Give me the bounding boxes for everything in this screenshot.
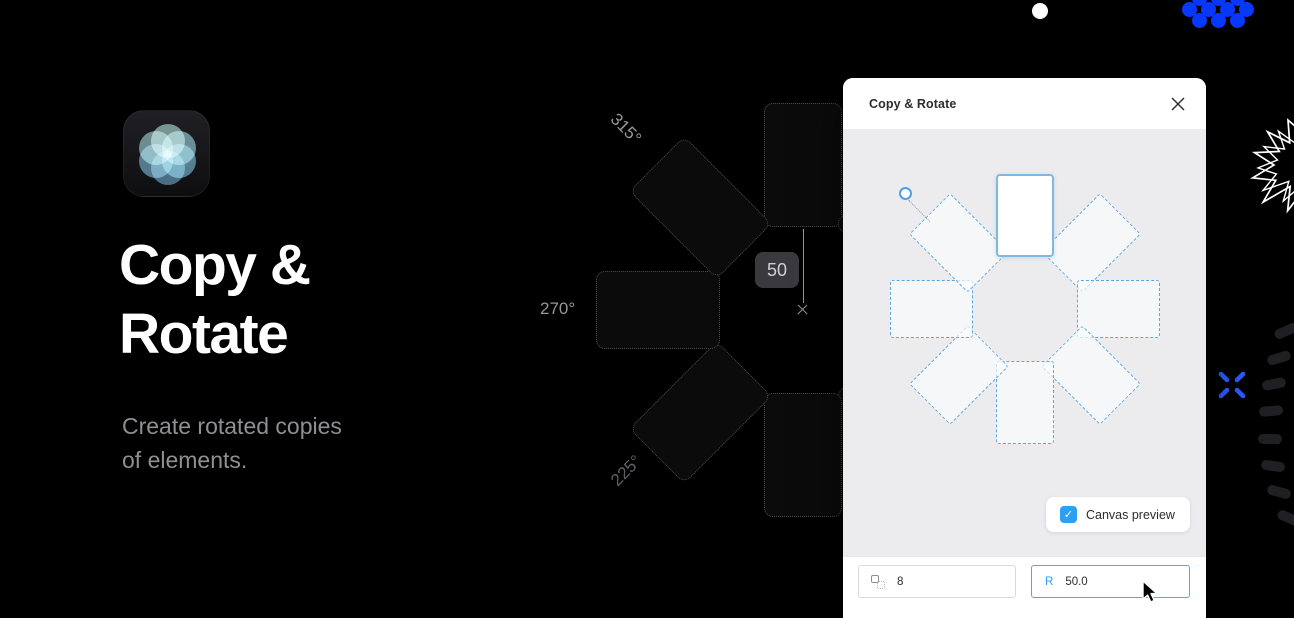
- plugin-preview-area[interactable]: ✓ Canvas preview: [843, 130, 1206, 556]
- canvas-copy-rectangle: [596, 271, 720, 349]
- radius-input[interactable]: R 50.0: [1031, 565, 1190, 598]
- radius-value: 50.0: [1065, 576, 1087, 588]
- preview-copy-rectangle: [996, 361, 1054, 444]
- checkbox-checked-icon[interactable]: ✓: [1060, 506, 1077, 523]
- angle-label-270: 270°: [540, 299, 575, 319]
- canvas-preview-toggle[interactable]: ✓ Canvas preview: [1046, 497, 1190, 532]
- page-title-line1: Copy &: [119, 231, 310, 300]
- preview-copy-rectangle: [1077, 280, 1160, 338]
- plugin-app-icon: [123, 110, 210, 197]
- canvas-copy-rectangle: [629, 136, 772, 279]
- preview-original-rectangle[interactable]: [996, 174, 1054, 257]
- angle-label-315: 315°: [606, 109, 645, 148]
- angle-label-225: 225°: [607, 451, 646, 490]
- mouse-cursor: [1140, 580, 1162, 604]
- preview-copy-rectangle: [890, 280, 973, 338]
- copies-count-value: 8: [897, 576, 903, 588]
- blue-x-decoration: [1214, 367, 1250, 403]
- preview-copy-rectangle: [909, 325, 1009, 425]
- canvas-copy-rectangle: [629, 341, 772, 484]
- preview-copy-rectangle: [909, 193, 1009, 293]
- rotation-handle[interactable]: [899, 187, 912, 200]
- canvas-copy-rectangle: [764, 103, 842, 227]
- radius-value-badge: 50: [755, 252, 799, 288]
- preview-copy-rectangle: [1041, 193, 1141, 293]
- page-title: Copy & Rotate: [119, 231, 310, 369]
- canvas-preview-label: Canvas preview: [1086, 508, 1175, 522]
- zigzag-star-decoration: [1245, 105, 1294, 225]
- page-title-line2: Rotate: [119, 300, 310, 369]
- radius-measure-line: [803, 229, 804, 303]
- copy-rotate-plugin-window: Copy & Rotate ✓ Canvas preview: [843, 78, 1206, 618]
- stage: Copy & Rotate Create rotated copies of e…: [0, 0, 1294, 618]
- handle-connector-line: [908, 200, 930, 222]
- preview-copy-rectangle: [1041, 325, 1141, 425]
- copies-icon: [871, 575, 885, 589]
- white-dot-decoration: [1032, 3, 1048, 19]
- rotation-center-marker: [797, 304, 809, 316]
- radius-prefix: R: [1045, 576, 1053, 588]
- plugin-header: Copy & Rotate: [843, 78, 1206, 130]
- close-icon[interactable]: [1168, 94, 1188, 114]
- canvas-copy-rectangle: [764, 393, 842, 517]
- plugin-title: Copy & Rotate: [869, 78, 956, 130]
- page-subtitle: Create rotated copies of elements.: [122, 409, 342, 477]
- copies-count-input[interactable]: 8: [858, 565, 1016, 598]
